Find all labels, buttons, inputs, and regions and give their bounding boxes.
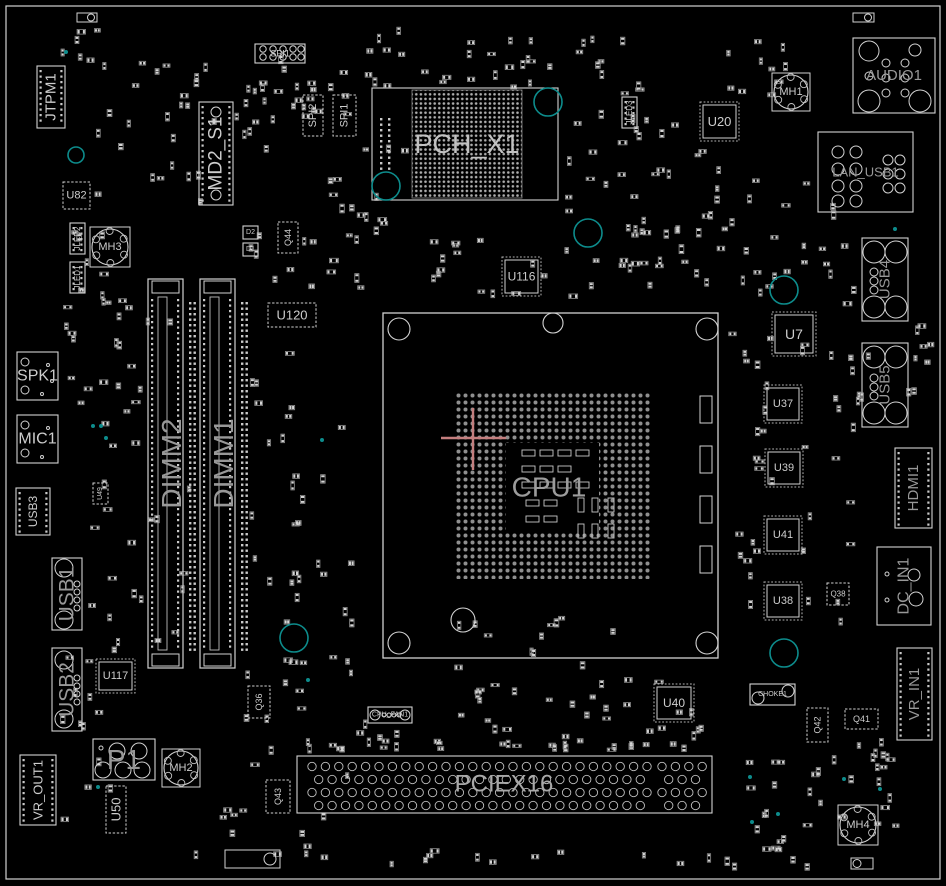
svg-text:U41: U41 xyxy=(773,529,793,541)
svg-text:P1: P1 xyxy=(107,744,141,775)
svg-text:U116: U116 xyxy=(508,270,536,284)
svg-text:HDMI1: HDMI1 xyxy=(905,465,922,512)
svg-text:U37: U37 xyxy=(773,398,793,410)
svg-text:U49: U49 xyxy=(97,487,104,500)
svg-text:Q36: Q36 xyxy=(254,693,264,710)
svg-text:U40: U40 xyxy=(663,696,685,710)
svg-text:JTPM1: JTPM1 xyxy=(43,73,60,121)
svg-text:Q43: Q43 xyxy=(273,788,283,805)
svg-text:MD2_S1: MD2_S1 xyxy=(206,117,227,191)
svg-text:SPI2: SPI2 xyxy=(307,104,319,128)
svg-text:USB3: USB3 xyxy=(26,496,40,528)
svg-text:VR_OUT1: VR_OUT1 xyxy=(31,760,46,820)
svg-text:LAN_USB1: LAN_USB1 xyxy=(832,165,898,180)
svg-text:Q42: Q42 xyxy=(813,716,823,733)
svg-text:USB1: USB1 xyxy=(56,567,79,622)
board-diagram-canvas: DIMM2DIMM1PCH_X1CPU1PCIEX16JTPM1U82JLED2… xyxy=(0,0,946,886)
svg-text:JLED1: JLED1 xyxy=(73,265,82,290)
svg-text:MH1: MH1 xyxy=(779,86,802,98)
svg-text:U50: U50 xyxy=(109,798,124,822)
svg-text:USB4: USB4 xyxy=(877,260,894,299)
svg-text:U38: U38 xyxy=(773,595,793,607)
svg-text:DC_IN1: DC_IN1 xyxy=(896,557,913,614)
svg-text:USB5: USB5 xyxy=(877,365,894,404)
component-usb1: USB1 xyxy=(52,558,82,630)
svg-text:D1: D1 xyxy=(246,246,255,253)
svg-text:SPI1: SPI1 xyxy=(339,104,351,128)
svg-text:PCH_X1: PCH_X1 xyxy=(414,129,519,159)
svg-text:Q38: Q38 xyxy=(830,590,846,599)
svg-text:CHOKE1: CHOKE1 xyxy=(758,691,787,698)
svg-text:U7: U7 xyxy=(785,326,803,342)
svg-text:U39: U39 xyxy=(774,462,794,474)
svg-text:D2: D2 xyxy=(246,229,255,236)
svg-text:USB2: USB2 xyxy=(56,662,79,717)
svg-text:SPI1: SPI1 xyxy=(270,49,290,59)
svg-text:Q44: Q44 xyxy=(283,229,293,246)
svg-text:SPK1: SPK1 xyxy=(17,368,58,385)
svg-text:MIC1: MIC1 xyxy=(18,431,56,448)
svg-text:MH2: MH2 xyxy=(169,762,192,774)
svg-text:VR_IN1: VR_IN1 xyxy=(906,668,923,721)
svg-text:U82: U82 xyxy=(66,190,86,202)
svg-text:CPU_FAN1: CPU_FAN1 xyxy=(372,712,408,719)
svg-text:DIMM1: DIMM1 xyxy=(208,418,239,508)
svg-text:U117: U117 xyxy=(103,670,128,682)
svg-text:U20: U20 xyxy=(708,114,732,129)
svg-text:DIMM2: DIMM2 xyxy=(156,418,187,508)
svg-text:AUDIO1: AUDIO1 xyxy=(866,67,922,84)
svg-text:U120: U120 xyxy=(276,308,307,323)
svg-text:JLED3: JLED3 xyxy=(625,100,634,125)
svg-text:Q41: Q41 xyxy=(853,714,870,724)
svg-text:MH4: MH4 xyxy=(846,819,869,831)
svg-text:JLED2: JLED2 xyxy=(73,226,82,251)
svg-text:MH3: MH3 xyxy=(98,241,121,253)
svg-text:CPU1: CPU1 xyxy=(512,472,587,503)
pcb-placement-diagram: DIMM2DIMM1PCH_X1CPU1PCIEX16JTPM1U82JLED2… xyxy=(0,0,946,886)
svg-text:PCIEX16: PCIEX16 xyxy=(455,771,554,798)
